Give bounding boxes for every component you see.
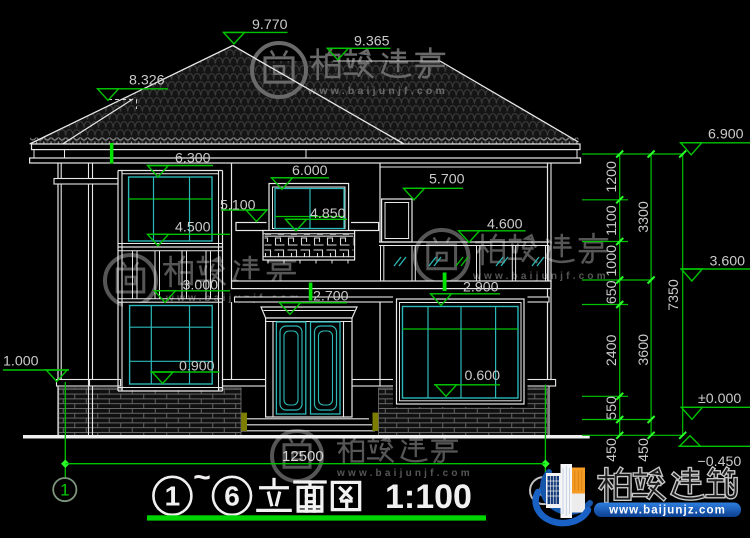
svg-text:6.900: 6.900	[708, 127, 744, 143]
svg-text:650: 650	[604, 280, 620, 304]
svg-text:2400: 2400	[604, 335, 620, 367]
svg-text:9.365: 9.365	[354, 34, 390, 50]
svg-text:7350: 7350	[666, 279, 682, 311]
svg-text:2.900: 2.900	[463, 280, 499, 296]
svg-text:1200: 1200	[604, 161, 620, 193]
svg-text:www.baijunjf.com: www.baijunjf.com	[307, 85, 448, 97]
svg-text:3.600: 3.600	[710, 254, 746, 270]
svg-text:2.700: 2.700	[313, 289, 349, 305]
svg-text:±0.000: ±0.000	[698, 391, 741, 407]
svg-text:12500: 12500	[282, 448, 324, 465]
svg-text:450: 450	[636, 438, 652, 462]
svg-text:550: 550	[604, 396, 620, 420]
svg-text:1000: 1000	[604, 245, 620, 277]
svg-text:3300: 3300	[636, 201, 652, 233]
svg-text:5.700: 5.700	[429, 172, 465, 188]
svg-text:450: 450	[604, 438, 620, 462]
svg-text:6.300: 6.300	[175, 151, 211, 167]
svg-text:1.000: 1.000	[3, 354, 39, 370]
svg-text:~: ~	[193, 461, 211, 494]
svg-text:6.000: 6.000	[292, 163, 328, 179]
svg-text:1: 1	[165, 481, 181, 512]
svg-text:1:100: 1:100	[385, 478, 472, 516]
svg-text:6: 6	[224, 481, 240, 512]
svg-text:4.600: 4.600	[487, 217, 523, 233]
svg-text:9.770: 9.770	[252, 17, 288, 33]
svg-text:0.900: 0.900	[179, 359, 215, 375]
svg-text:−0.450: −0.450	[698, 454, 742, 470]
svg-text:1100: 1100	[604, 205, 620, 236]
svg-text:4.500: 4.500	[175, 220, 211, 236]
svg-text:www.baijunjz.com: www.baijunjz.com	[608, 505, 726, 517]
svg-text:5.100: 5.100	[220, 198, 256, 214]
svg-text:3600: 3600	[636, 334, 652, 366]
svg-text:8.326: 8.326	[129, 73, 165, 89]
svg-text:3.000: 3.000	[183, 278, 219, 294]
svg-text:0.600: 0.600	[465, 368, 501, 384]
svg-text:4.850: 4.850	[310, 206, 346, 222]
svg-text:1: 1	[60, 481, 69, 500]
